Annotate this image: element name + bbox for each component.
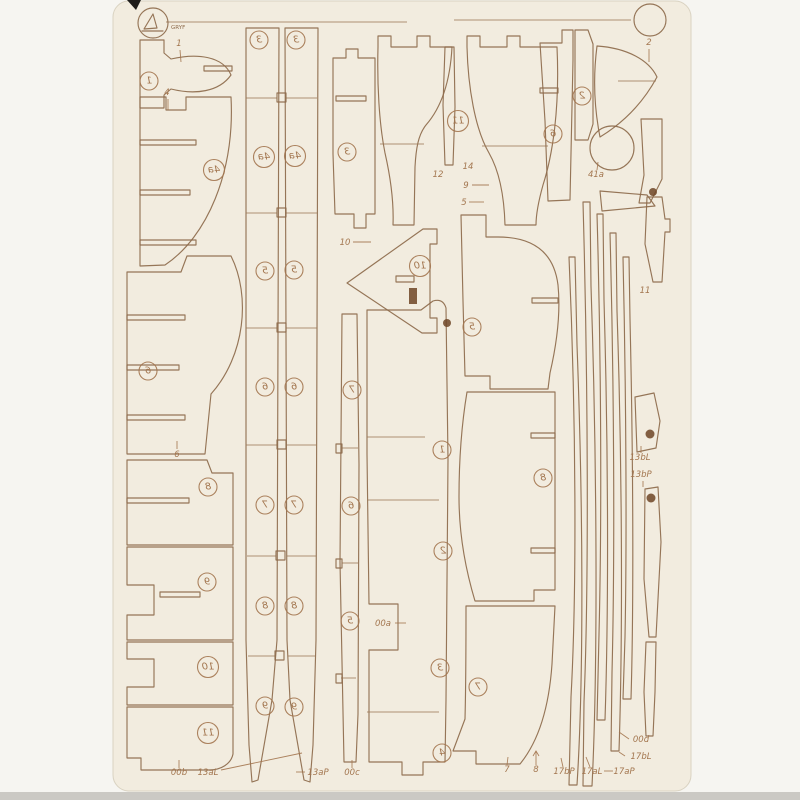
svg-text:13aP: 13aP [307, 768, 329, 778]
svg-text:13bL: 13bL [630, 453, 651, 463]
svg-text:4a: 4a [208, 165, 221, 176]
svg-text:6: 6 [348, 501, 354, 512]
svg-text:7: 7 [261, 500, 268, 511]
svg-text:7: 7 [348, 385, 355, 396]
svg-text:6: 6 [262, 382, 268, 393]
svg-text:17aL: 17aL [582, 767, 603, 777]
svg-text:13aL: 13aL [198, 768, 219, 778]
svg-text:9: 9 [262, 701, 268, 712]
svg-text:00c: 00c [344, 768, 360, 778]
svg-text:4a: 4a [258, 152, 271, 163]
svg-text:6: 6 [550, 129, 556, 140]
svg-text:13bP: 13bP [630, 470, 652, 480]
svg-text:5: 5 [461, 198, 466, 208]
svg-text:9: 9 [463, 181, 468, 191]
svg-text:10: 10 [202, 662, 215, 673]
svg-text:11: 11 [202, 728, 215, 739]
svg-text:00d: 00d [633, 735, 650, 745]
engraved-dot [646, 430, 655, 439]
svg-text:14: 14 [463, 162, 474, 172]
svg-text:7: 7 [474, 682, 481, 693]
logo-text: GRYF [171, 25, 185, 31]
engraved-rect-mark [409, 288, 417, 304]
svg-text:5: 5 [347, 616, 353, 627]
svg-text:10: 10 [340, 238, 351, 248]
svg-text:3: 3 [437, 663, 443, 674]
svg-text:1: 1 [176, 39, 181, 49]
svg-text:41a: 41a [588, 170, 604, 180]
svg-text:4: 4 [164, 88, 169, 98]
svg-text:10: 10 [414, 261, 427, 272]
svg-text:6: 6 [145, 366, 151, 377]
svg-text:4: 4 [439, 748, 445, 759]
svg-text:11: 11 [640, 286, 651, 296]
svg-text:2: 2 [579, 91, 585, 102]
svg-text:17bP: 17bP [553, 767, 575, 777]
svg-text:6: 6 [174, 450, 180, 460]
svg-text:5: 5 [291, 265, 297, 276]
svg-text:8: 8 [533, 765, 539, 775]
svg-text:2: 2 [646, 38, 651, 48]
svg-text:9: 9 [204, 577, 210, 588]
svg-text:4a: 4a [289, 151, 302, 162]
svg-text:7: 7 [504, 765, 510, 775]
svg-text:11: 11 [452, 116, 465, 127]
svg-text:6: 6 [291, 382, 297, 393]
scan-bottom-band [0, 792, 800, 800]
part-label-14: 14 [463, 162, 474, 172]
scanned-parts-sheet: GRYF [0, 0, 800, 800]
part-label-11: 11 [640, 286, 651, 296]
svg-text:3: 3 [344, 147, 350, 158]
parts-sheet-drawing: GRYF [0, 0, 800, 800]
svg-text:8: 8 [291, 601, 297, 612]
svg-text:9: 9 [291, 702, 297, 713]
svg-text:8: 8 [262, 601, 268, 612]
engraved-dot [649, 188, 657, 196]
engraved-dot [443, 319, 451, 327]
svg-text:00b: 00b [171, 768, 187, 778]
svg-text:1: 1 [146, 76, 152, 87]
svg-text:17bL: 17bL [631, 752, 652, 762]
svg-text:17aP: 17aP [613, 767, 635, 777]
svg-text:2: 2 [440, 546, 446, 557]
svg-text:3: 3 [293, 35, 299, 46]
svg-text:00a: 00a [375, 619, 391, 629]
svg-text:8: 8 [205, 482, 211, 493]
svg-text:8: 8 [540, 473, 546, 484]
engraved-dot [647, 494, 656, 503]
svg-text:3: 3 [256, 35, 262, 46]
svg-text:5: 5 [262, 266, 268, 277]
svg-text:5: 5 [469, 322, 475, 333]
svg-text:1: 1 [439, 445, 445, 456]
part-label-12: 12 [433, 170, 444, 180]
svg-text:7: 7 [290, 500, 297, 511]
svg-text:12: 12 [433, 170, 444, 180]
